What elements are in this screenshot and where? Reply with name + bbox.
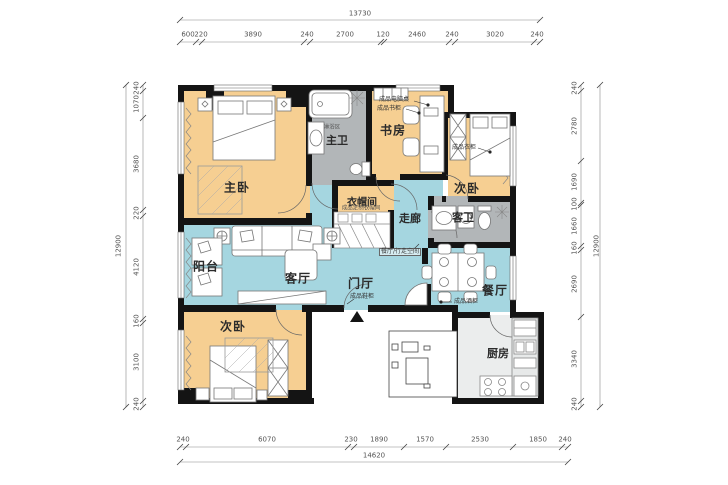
dim-top-seg-1: 220 [194,32,207,39]
room-label-master-bath: 主卫 [326,132,348,148]
dim-left-seg-4: 4120 [134,258,141,276]
dim-bottom-seg-0: 240 [176,437,189,444]
dim-right-seg-0: 240 [572,81,579,94]
dim-top-seg-4: 2700 [336,32,354,39]
dim-top-seg-8: 3020 [486,32,504,39]
annotation-wine-cabinet: 成品酒柜 [454,299,478,305]
dim-bottom-seg-6: 1850 [529,437,547,444]
furniture-cloakroom [334,212,390,248]
room-label-study: 书房 [380,122,406,139]
annotation-custom-cloakroom: 成品定制衣帽间 [342,206,381,212]
dim-left-overall: 12900 [116,235,123,257]
dim-right-seg-4: 1660 [572,217,579,235]
room-label-balcony: 阳台 [193,258,219,275]
dim-right-overall: 12900 [594,235,601,257]
dim-right-seg-1: 2780 [572,117,579,135]
furniture-bedroom-sw [196,338,288,402]
annotation-walk-space: 餐厅/行走空间 [379,248,421,256]
dim-right-seg-3: 100 [572,197,579,210]
shaft-core [389,331,457,397]
dim-top-seg-6: 2460 [408,32,426,39]
dim-left-seg-1: 1070 [134,95,141,113]
dim-top-seg-0: 600 [181,32,194,39]
dim-bottom-seg-2: 230 [344,437,357,444]
room-label-living: 客厅 [285,270,311,287]
dim-right-seg-5: 160 [572,241,579,254]
dim-top-overall: 13730 [349,11,371,18]
annotation-shoe-cabinet: 成品鞋柜 [350,294,374,300]
room-label-bedroom-sw: 次卧 [220,318,246,335]
dim-left-seg-0: 240 [134,81,141,94]
dim-bottom-seg-1: 6070 [258,437,276,444]
room-label-guest-bath: 客卫 [452,209,474,225]
dim-right-seg-7: 3340 [572,350,579,368]
dim-top-seg-3: 240 [300,32,313,39]
dim-bottom-seg-4: 1570 [416,437,434,444]
room-label-foyer: 门厅 [348,275,374,292]
dim-right-seg-8: 240 [572,397,579,410]
dim-bottom-seg-5: 2530 [471,437,489,444]
dim-top-seg-7: 240 [445,32,458,39]
annotation-wardrobe: 成品衣柜 [452,145,476,151]
room-label-master-bedroom: 主卧 [224,179,250,196]
dim-left-seg-7: 240 [134,397,141,410]
dim-left-seg-2: 3680 [134,155,141,173]
room-label-corridor: 走廊 [399,210,421,226]
room-label-bedroom-ne: 次卧 [454,180,480,197]
dim-left-seg-3: 220 [134,206,141,219]
dim-top-seg-2: 3890 [244,32,262,39]
dim-right-seg-6: 2690 [572,275,579,293]
entry-arrow [350,311,364,322]
dim-left-seg-5: 160 [134,314,141,327]
dim-left-seg-6: 3100 [134,353,141,371]
floor-plan-canvas: 主卧 主卫 书房 次卧 客卫 衣帽间 走廊 客厅 阳台 门厅 餐厅 次卧 厨房 … [0,0,728,485]
annotation-shower-area: 淋浴区 [324,125,341,131]
room-label-dining: 餐厅 [482,282,508,299]
dim-right-seg-2: 1690 [572,173,579,191]
dim-bottom-overall: 14620 [363,453,385,460]
dim-top-seg-5: 120 [376,32,389,39]
room-label-kitchen: 厨房 [487,345,509,361]
dim-bottom-seg-3: 1890 [370,437,388,444]
annotation-computer-desk: 成品电脑桌 [379,97,409,103]
annotation-bookcase: 成品书柜 [377,106,401,112]
dim-bottom-seg-7: 240 [558,437,571,444]
floorplan-drawing [0,0,728,485]
dim-top-seg-9: 240 [530,32,543,39]
